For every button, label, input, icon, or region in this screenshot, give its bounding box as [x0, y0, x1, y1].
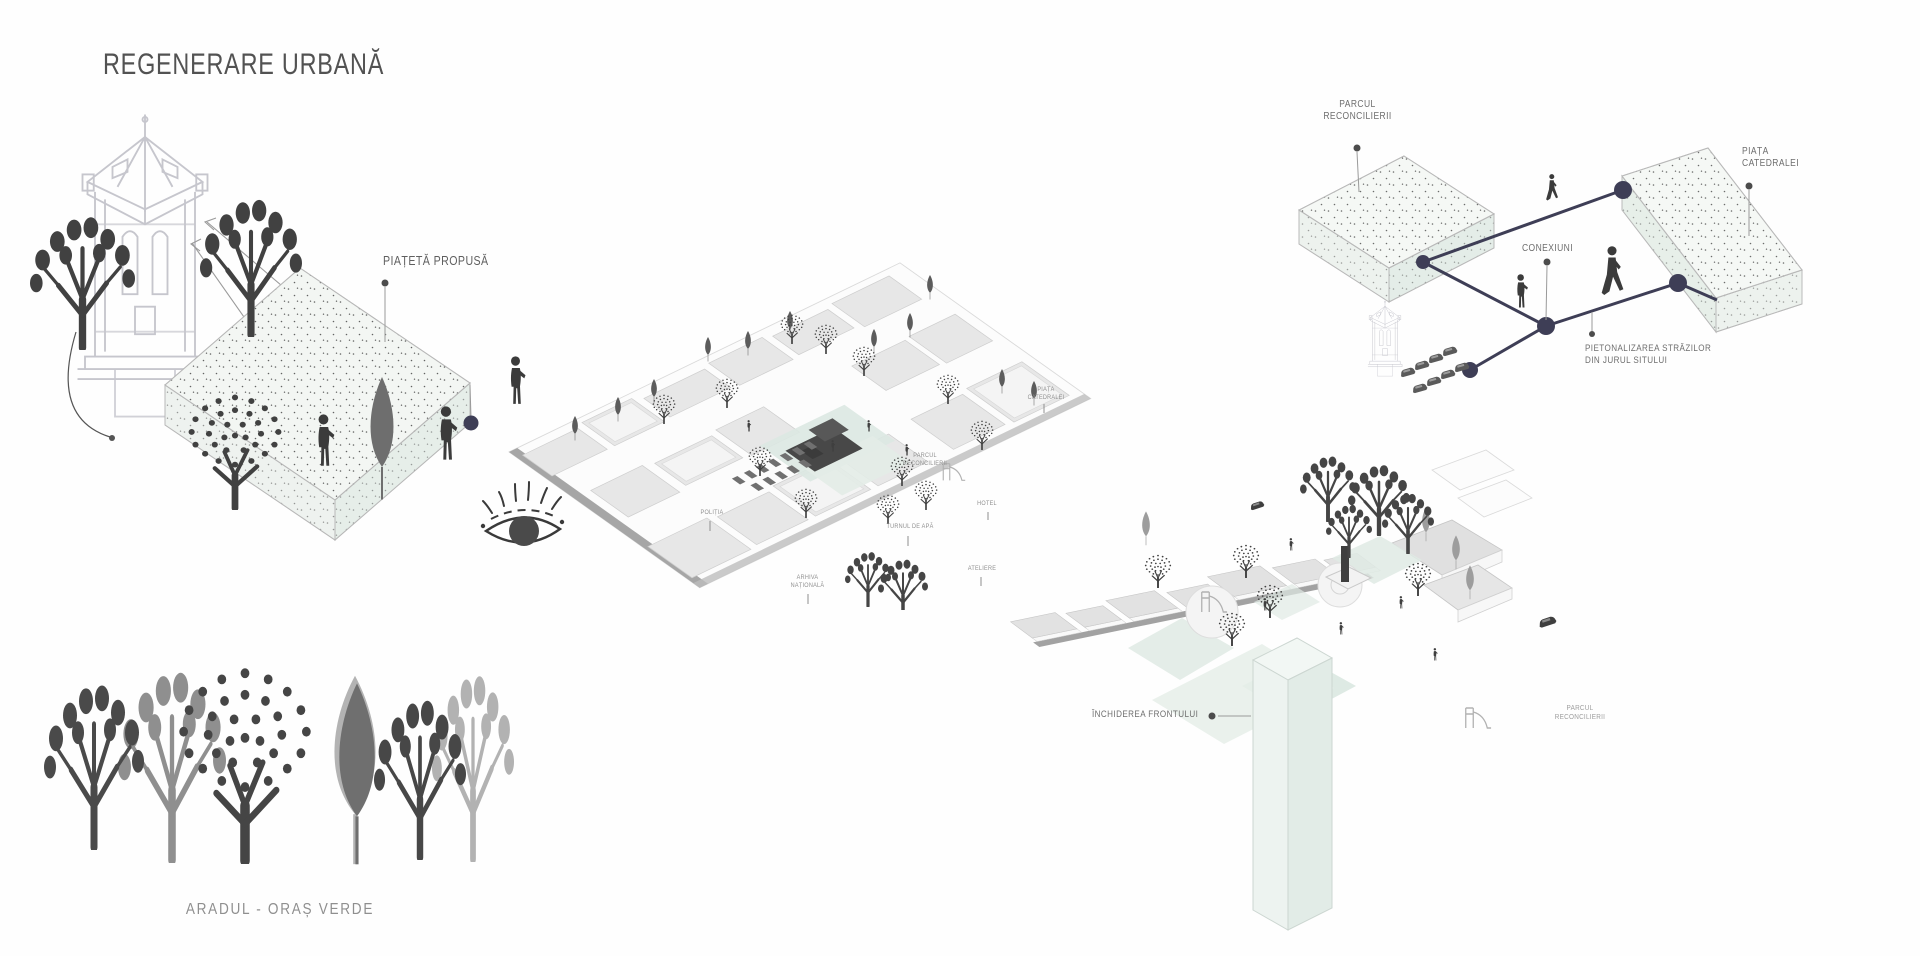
map-label-politia: POLIȚIA: [698, 509, 727, 517]
tree-icon: [432, 676, 514, 859]
arc-line: [68, 332, 110, 437]
tree-icon: [30, 217, 135, 347]
map-label-parcul: PARCUL RECONCILIERII: [887, 452, 964, 467]
water-tower-icon: [1368, 301, 1402, 377]
map-label-piata: PIAȚA CATEDRALEI: [1021, 386, 1072, 401]
green-city-caption: ARADUL - ORAȘ VERDE: [161, 901, 399, 919]
person-icon: [1546, 174, 1558, 200]
front-closure-prism: [1253, 638, 1332, 930]
map-label-turnul: TURNUL DE APĂ: [876, 523, 944, 531]
car-icon: [1538, 615, 1557, 628]
cars-group: [1399, 346, 1469, 394]
presentation-board: REGENERARE URBANĂ PIAȚETĂ PROPUSĂ ARADUL…: [0, 0, 1920, 956]
map-label-ateliere: ATELIERE: [962, 565, 1003, 573]
person-icon: [1517, 274, 1528, 307]
connections-label-pietonalizare: PIETONALIZAREA STRĂZILOR DIN JURUL SITUL…: [1585, 343, 1711, 367]
right-buildings: [1392, 450, 1532, 622]
connections-label-parcul: PARCUL RECONCILIERII: [1309, 99, 1407, 123]
map-label-arhiva: ARHIVA NAȚIONALĂ: [784, 574, 831, 589]
car-icon: [1249, 500, 1264, 510]
map-label-hotel: HOTEL: [973, 500, 1002, 508]
label-dot: [1209, 713, 1216, 720]
cathedral-slab: [1622, 148, 1802, 332]
front-closure-illustration: [1010, 430, 1570, 956]
green-city-illustration: [20, 630, 520, 940]
plaza-slab: [165, 268, 470, 540]
proposed-plaza-label: PIAȚETĂ PROPUSĂ: [383, 254, 489, 268]
front-closure-label: ÎNCHIDEREA FRONTULUI: [1092, 709, 1198, 721]
playground-icon: [1466, 708, 1491, 728]
connections-illustration: [1050, 80, 1820, 420]
site-map-plate: [509, 263, 1091, 588]
connections-label-piata: PIAȚA CATEDRALEI: [1742, 146, 1799, 170]
front-closure-parcul-label: PARCUL RECONCILIERII: [1542, 703, 1619, 721]
park-slab: [1299, 156, 1494, 302]
plaza-node: [464, 416, 479, 431]
connections-label-conexiuni: CONEXIUNI: [1507, 243, 1588, 255]
person-icon: [1602, 246, 1624, 295]
label-dot: [382, 280, 389, 287]
page-title: REGENERARE URBANĂ: [103, 48, 384, 82]
